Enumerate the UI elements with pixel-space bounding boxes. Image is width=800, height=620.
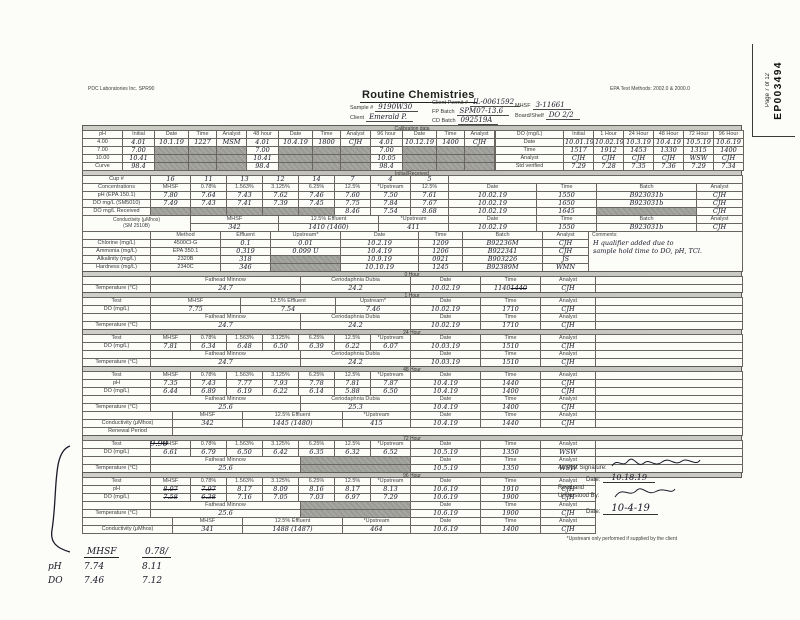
table-cell: pH: [83, 131, 123, 139]
table-cell: Time: [481, 314, 541, 322]
table-cell: Analyst: [217, 131, 247, 139]
table-cell: Time: [481, 396, 541, 404]
table-cell: Time: [189, 131, 217, 139]
handwritten-value: 10.4.19: [341, 248, 419, 256]
handwritten-value: 4.01: [123, 139, 155, 147]
handwritten-value: 8.17: [335, 486, 371, 494]
table-cell: [83, 277, 151, 285]
table-cell: Cup #: [83, 176, 151, 184]
table-cell: [83, 412, 173, 420]
handwritten-value: 8.17: [227, 486, 263, 494]
table-cell: [403, 155, 437, 163]
handwritten-value: 7.60: [335, 192, 371, 200]
handwritten-value: 98.4: [371, 163, 403, 171]
table-cell: 6.25%: [299, 478, 335, 486]
table-cell: [301, 457, 411, 465]
handwritten-value: 10.1.19: [155, 139, 189, 147]
table-cell: Time: [481, 412, 541, 420]
table-cell: Analyst: [697, 184, 743, 192]
handwritten-value: B923031b: [597, 200, 697, 208]
table-cell: 0.78%: [191, 372, 227, 380]
table-cell: Conductivity (μMhos): [83, 526, 173, 534]
table-cell: 12.5% Effluent: [241, 298, 336, 306]
handwritten-value: 1912: [594, 147, 624, 155]
notes-header-row: MHSF 0.78/: [48, 544, 194, 558]
handwritten-value: 7: [335, 176, 371, 184]
handwritten-value: CJH: [541, 380, 596, 388]
table-cell: 0.78%: [191, 441, 227, 449]
table-cell: MHSF: [191, 216, 279, 224]
table-cell: 6.25%: [299, 372, 335, 380]
0-hour-temperature-table: Fathead MinnowCeriodaphnia DubiaDateTime…: [82, 276, 742, 293]
handwritten-value: 98.4: [247, 163, 279, 171]
handwritten-value: MSM: [217, 139, 247, 147]
handwritten-value: 7.64: [191, 192, 227, 200]
table-cell: Analyst: [465, 131, 495, 139]
table-cell: Test: [83, 298, 151, 306]
cd-batch-field: CD Batch092519A: [432, 116, 498, 125]
96-hour-conductivity-table: MHSF12.5% Effluent*UpstreamDateTimeAnaly…: [82, 517, 742, 534]
table-cell: Time: [537, 184, 597, 192]
table-cell: [313, 163, 341, 171]
table-cell: [437, 163, 465, 171]
handwritten-value: 7.81: [335, 380, 371, 388]
initial-conductivity-table: Conductivity (μMhos) (SM 2510B)MHSF12.5%…: [82, 215, 742, 232]
table-cell: Analyst: [541, 412, 596, 420]
mhsf-field: MHSF3-11661: [515, 101, 571, 110]
table-cell: [271, 256, 341, 264]
handwritten-value: CJH: [714, 155, 744, 163]
table-cell: [155, 163, 189, 171]
table-cell: Date: [411, 277, 481, 285]
table-cell: pH: [83, 486, 151, 494]
table-cell: [341, 155, 371, 163]
reviewer-signature: [613, 485, 677, 501]
table-cell: 6.25%: [299, 335, 335, 343]
handwritten-value: CJH: [594, 155, 624, 163]
table-cell: 12.5%: [335, 372, 371, 380]
table-cell: Upstream*: [336, 298, 411, 306]
handwritten-value: 1315: [684, 147, 714, 155]
table-cell: [403, 147, 437, 155]
table-cell: Fathead Minnow: [151, 396, 301, 404]
table-cell: [83, 232, 151, 240]
table-cell: 6.25%: [299, 184, 335, 192]
table-cell: [217, 155, 247, 163]
table-cell: Analyst: [697, 216, 743, 224]
handwritten-value: 7.80: [151, 192, 191, 200]
table-cell: [465, 147, 495, 155]
handwritten-value: CJH: [543, 240, 589, 248]
table-cell: Analyst: [541, 396, 596, 404]
handwritten-value: CJH: [465, 139, 495, 147]
table-cell: 0.78%: [191, 335, 227, 343]
handwritten-value: 16: [151, 176, 191, 184]
handwritten-value: 7.61: [411, 192, 449, 200]
notes-do-078: 7.12: [142, 576, 194, 586]
handwritten-value: 10.12.19: [403, 139, 437, 147]
table-cell: Time: [481, 372, 541, 380]
do-calibration-table: DO (mg/L)Initial1 Hour24 Hour48 Hour72 H…: [495, 131, 744, 171]
table-cell: Date: [411, 335, 481, 343]
table-cell: Curve: [83, 163, 123, 171]
table-cell: Analyst: [541, 277, 596, 285]
handwritten-value: 341: [173, 526, 243, 534]
table-cell: [217, 147, 247, 155]
analyst-signature-label: Analyst Signature:: [558, 465, 607, 471]
handwritten-value: 10.4.19: [411, 380, 481, 388]
table-cell: [596, 412, 743, 420]
table-cell: 1.563%: [227, 372, 263, 380]
table-cell: Batch: [597, 216, 697, 224]
table-cell: Concentrations: [83, 184, 151, 192]
table-cell: 1.563%: [227, 441, 263, 449]
table-cell: Date: [449, 216, 537, 224]
table-cell: 1.563%: [227, 184, 263, 192]
table-cell: 72 Hour: [684, 131, 714, 139]
document-id: EP003494: [773, 61, 784, 120]
sample-value: 9190W30: [375, 103, 418, 112]
handwritten-value: 12: [263, 176, 299, 184]
table-cell: [189, 155, 217, 163]
table-cell: Time: [481, 351, 541, 359]
table-cell: [217, 163, 247, 171]
table-cell: Test: [83, 335, 151, 343]
notes-do-key: DO: [48, 576, 84, 586]
handwritten-value: CJH: [541, 420, 596, 428]
client-field: ClientEmerald P.: [350, 113, 413, 122]
table-cell: Date: [403, 131, 437, 139]
page-stamp: Page 7 of 12 EP003494: [752, 44, 795, 137]
table-cell: [596, 441, 743, 449]
table-cell: MHSF: [151, 478, 191, 486]
table-cell: Date: [411, 478, 481, 486]
sample-field: Sample #9190W30: [350, 103, 418, 112]
read-date-label: Date:: [586, 509, 600, 515]
handwritten-value: 13: [227, 176, 263, 184]
table-cell: pH: [83, 380, 151, 388]
mhsf-value: 3-11661: [533, 101, 571, 110]
table-cell: 0.78%: [191, 184, 227, 192]
handwritten-value: 4.01: [247, 139, 279, 147]
handwritten-value: 7.93: [263, 380, 299, 388]
handwritten-value: CJH: [697, 192, 743, 200]
table-cell: Date: [411, 298, 481, 306]
cd-batch-value: 092519A: [458, 116, 499, 125]
handwritten-value: 0.1: [221, 240, 271, 248]
handwritten-value: 7.87: [371, 380, 411, 388]
handwritten-value: 7.43: [191, 380, 227, 388]
table-cell: Time: [481, 277, 541, 285]
table-cell: Conductivity (μMhos): [83, 420, 173, 428]
handwritten-value: 1800: [313, 139, 341, 147]
table-cell: [465, 163, 495, 171]
table-cell: 3.125%: [263, 335, 299, 343]
handwritten-value: 1550: [537, 192, 597, 200]
table-cell: [437, 155, 465, 163]
handwritten-value: 8.13: [371, 486, 411, 494]
handwritten-value: 10.6.19: [411, 526, 481, 534]
table-cell: [596, 298, 743, 306]
handwritten-value: 7.78: [299, 380, 335, 388]
table-cell: Analyst: [341, 131, 371, 139]
48-hour-conductivity-table: MHSF12.5% Effluent*UpstreamDateTimeAnaly…: [82, 411, 742, 436]
table-cell: *Upstream: [343, 412, 411, 420]
table-cell: *Upstream: [343, 518, 411, 526]
table-cell: MHSF: [151, 372, 191, 380]
fp-batch-value: SPM07-13.6: [457, 107, 510, 116]
read-understood-label: Read and Understood By:: [558, 485, 610, 501]
table-cell: Time: [313, 131, 341, 139]
handwritten-value: 0.01: [271, 240, 341, 248]
table-cell: 96 Hour: [714, 131, 744, 139]
handwritten-value: 10.4.19: [654, 139, 684, 147]
table-cell: 12.5%: [411, 184, 449, 192]
table-cell: Time: [437, 131, 465, 139]
handwritten-value: 1227: [189, 139, 217, 147]
comments-cell: Comments:H qualifier added due to sample…: [589, 232, 743, 272]
handwritten-value: 7.50: [371, 192, 411, 200]
table-cell: Date: [341, 232, 419, 240]
handwritten-value: CJH: [624, 155, 654, 163]
handwritten-value: 7.35: [624, 163, 654, 171]
handwritten-value: 7.29: [564, 163, 594, 171]
handwritten-value: 7.45: [299, 200, 335, 208]
handwritten-value: 1400: [481, 526, 541, 534]
handwritten-value: 7.77: [227, 380, 263, 388]
analyst-date-label: Date:: [586, 477, 600, 483]
handwritten-value: 415: [343, 420, 411, 428]
table-cell: Ceriodaphnia Dubia: [301, 314, 411, 322]
table-cell: Test: [83, 478, 151, 486]
handwritten-value: 10.4.19: [411, 420, 481, 428]
handwritten-value: 7.49: [151, 200, 191, 208]
table-cell: Fathead Minnow: [151, 314, 301, 322]
24-hour-temperature-table: Fathead MinnowCeriodaphnia DubiaDateTime…: [82, 350, 742, 367]
handwritten-value: 1910: [481, 486, 541, 494]
table-cell: Date: [411, 441, 481, 449]
handwritten-value: WSW: [684, 155, 714, 163]
handwritten-value: 7.34: [714, 163, 744, 171]
concentration-table: Cup #1611131214745ConcentrationsMHSF0.78…: [82, 175, 742, 216]
table-cell: Time: [419, 232, 463, 240]
table-cell: 48 Hour: [654, 131, 684, 139]
handwritten-value: 1206: [419, 248, 463, 256]
table-cell: [596, 351, 743, 359]
handwritten-value: 7.29: [684, 163, 714, 171]
permit-value: IL-0061592: [470, 98, 520, 107]
table-cell: [83, 351, 151, 359]
scanned-lab-form: PDC Laboratories Inc. SPR90 EPA Test Met…: [0, 0, 800, 620]
table-cell: 4.00: [83, 139, 123, 147]
table-cell: 48 hour: [247, 131, 279, 139]
board-shelf-value: DO 2/2: [546, 111, 580, 120]
handwritten-value: 7.00: [247, 147, 279, 155]
handwritten-value: CJH: [654, 155, 684, 163]
notes-ph-078: 8.11: [142, 562, 194, 572]
handwritten-value: 10.4.19: [279, 139, 313, 147]
table-cell: Time: [481, 298, 541, 306]
handwritten-value: 1517: [564, 147, 594, 155]
table-cell: 3.125%: [263, 372, 299, 380]
table-cell: Analyst: [541, 335, 596, 343]
handwritten-value: 318: [221, 256, 271, 264]
table-cell: [596, 380, 743, 388]
table-cell: 24 Hour: [624, 131, 654, 139]
table-cell: 1 Hour: [594, 131, 624, 139]
handwritten-value: 10.02.19: [594, 139, 624, 147]
board-shelf-field: Board/ShelfDO 2/2: [515, 111, 580, 120]
table-cell: [83, 518, 173, 526]
handwritten-value: 10.41: [247, 155, 279, 163]
handwritten-value: 10.6.19: [714, 139, 744, 147]
handwritten-value: 0.319: [221, 248, 271, 256]
table-cell: [596, 420, 743, 428]
handwritten-value: 1440: [481, 380, 541, 388]
48-hour-temperature-table: Fathead MinnowCeriodaphnia DubiaDateTime…: [82, 395, 742, 412]
analyst-signature: [610, 455, 702, 471]
table-cell: Conductivity (μMhos) (SM 2510B): [83, 216, 191, 232]
table-cell: Initial: [123, 131, 155, 139]
table-cell: 7.00: [83, 147, 123, 155]
notes-conc-label: 0.78/: [142, 547, 171, 558]
table-cell: Analyst: [543, 232, 589, 240]
ph-calibration-table: pHInitialDateTimeAnalyst48 hourDateTimeA…: [82, 131, 495, 171]
table-cell: Time: [481, 441, 541, 449]
table-cell: Analyst: [541, 441, 596, 449]
signature-block: Analyst Signature: Date: 10.18.19 Read a…: [558, 455, 748, 517]
table-cell: Date: [411, 502, 481, 510]
table-cell: 6.25%: [299, 441, 335, 449]
handwritten-value: 7.75: [335, 200, 371, 208]
table-cell: [279, 147, 313, 155]
handwritten-value: 11: [191, 176, 227, 184]
table-cell: Effluent: [221, 232, 271, 240]
handwritten-value: 7.41: [227, 200, 263, 208]
table-cell: [313, 155, 341, 163]
table-cell: Fathead Minnow: [151, 457, 301, 465]
handwritten-value: 7.46: [299, 192, 335, 200]
table-cell: 12.5%: [335, 184, 371, 192]
table-cell: [155, 155, 189, 163]
handwritten-value: 7.43: [191, 200, 227, 208]
table-cell: Test: [83, 372, 151, 380]
table-cell: Ceriodaphnia Dubia: [301, 277, 411, 285]
table-cell: Fathead Minnow: [151, 277, 301, 285]
handwritten-value: 10.41: [123, 155, 155, 163]
handwritten-value: 7.84: [371, 200, 411, 208]
handwritten-value: 10.6.19: [411, 486, 481, 494]
table-cell: Ceriodaphnia Dubia: [301, 351, 411, 359]
handwritten-value: 342: [173, 420, 243, 428]
table-cell: [596, 277, 743, 285]
table-cell: Alkalinity (mg/L): [83, 256, 151, 264]
analyst-date-value: 10.18.19: [603, 473, 655, 483]
table-cell: 2320B: [151, 256, 221, 264]
table-cell: Ammonia (mg/L): [83, 248, 151, 256]
notes-do-row: DO 7.46 7.12: [48, 572, 194, 586]
table-cell: 10.00: [83, 155, 123, 163]
method-results-table: MethodEffluentUpstream*DateTimeBatchAnal…: [82, 231, 742, 272]
table-cell: [83, 502, 151, 510]
notes-do-mhsf: 7.46: [84, 576, 142, 586]
handwritten-value: 14: [299, 176, 335, 184]
handwritten-value: 10.02.19: [449, 192, 537, 200]
table-cell: Time: [481, 502, 541, 510]
handwritten-value: 1650: [537, 200, 597, 208]
table-cell: Date: [411, 457, 481, 465]
handwritten-value: 1400: [714, 147, 744, 155]
handwritten-value: CJH: [543, 248, 589, 256]
table-cell: [596, 314, 743, 322]
calibration-tables: pHInitialDateTimeAnalyst48 hourDateTimeA…: [82, 131, 742, 171]
table-cell: DO (mg/L): [496, 131, 564, 139]
table-cell: [313, 147, 341, 155]
handwritten-value: 8.09: [263, 486, 299, 494]
table-cell: [437, 147, 465, 155]
handwritten-notes: MHSF 0.78/ pH 7.74 8.11 DO 7.46 7.12: [48, 544, 194, 586]
handwritten-value: 10.01.19: [564, 139, 594, 147]
client-value: Emerald P.: [366, 113, 413, 122]
handwritten-value: 8.16: [299, 486, 335, 494]
upstream-footnote: *Upstream only performed if supplied by …: [82, 536, 677, 542]
notes-mhsf-label: MHSF: [84, 547, 119, 558]
table-cell: MHSF: [173, 412, 243, 420]
table-cell: Date: [411, 396, 481, 404]
table-cell: 3.125%: [263, 184, 299, 192]
table-cell: 1.563%: [227, 478, 263, 486]
handwritten-bracket: [44, 444, 74, 556]
table-cell: [189, 147, 217, 155]
table-cell: Fathead Minnow: [151, 502, 301, 510]
table-cell: [449, 176, 743, 184]
table-cell: Method: [151, 232, 221, 240]
table-cell: Time: [481, 335, 541, 343]
table-cell: Date: [496, 139, 564, 147]
table-cell: Std verified: [496, 163, 564, 171]
handwritten-value: 7.36: [654, 163, 684, 171]
table-cell: Date: [411, 314, 481, 322]
lab-name: PDC Laboratories Inc. SPR90: [88, 86, 154, 92]
handwritten-value: 1445 (1480): [243, 420, 343, 428]
table-cell: MHSF: [151, 335, 191, 343]
handwritten-value: 7.67: [411, 200, 449, 208]
handwritten-value: JS: [543, 256, 589, 264]
notes-ph-mhsf: 7.74: [84, 562, 142, 572]
notes-ph-key: pH: [48, 562, 84, 572]
table-cell: DO mg/L (SM5010): [83, 200, 151, 208]
handwritten-value: 8.07: [151, 486, 191, 494]
table-cell: Analyst: [541, 372, 596, 380]
handwritten-value: CJH: [541, 526, 596, 534]
table-cell: Test: [83, 441, 151, 449]
fp-batch-field: FP BatchSPM07-13.6: [432, 107, 509, 116]
table-cell: Date: [411, 412, 481, 420]
table-cell: Time: [481, 518, 541, 526]
handwritten-value: 10.9.19: [341, 256, 419, 264]
table-cell: 0.78%: [191, 478, 227, 486]
table-cell: [155, 147, 189, 155]
handwritten-value: 10.3.19: [624, 139, 654, 147]
handwritten-value: 1400: [437, 139, 465, 147]
table-cell: [596, 335, 743, 343]
handwritten-value: 1209: [419, 240, 463, 248]
table-cell: Date: [411, 518, 481, 526]
table-cell: MHSF: [151, 298, 241, 306]
table-cell: [596, 396, 743, 404]
handwritten-value: 0.099 U: [271, 248, 341, 256]
table-cell: 12.5% Effluent: [243, 518, 343, 526]
